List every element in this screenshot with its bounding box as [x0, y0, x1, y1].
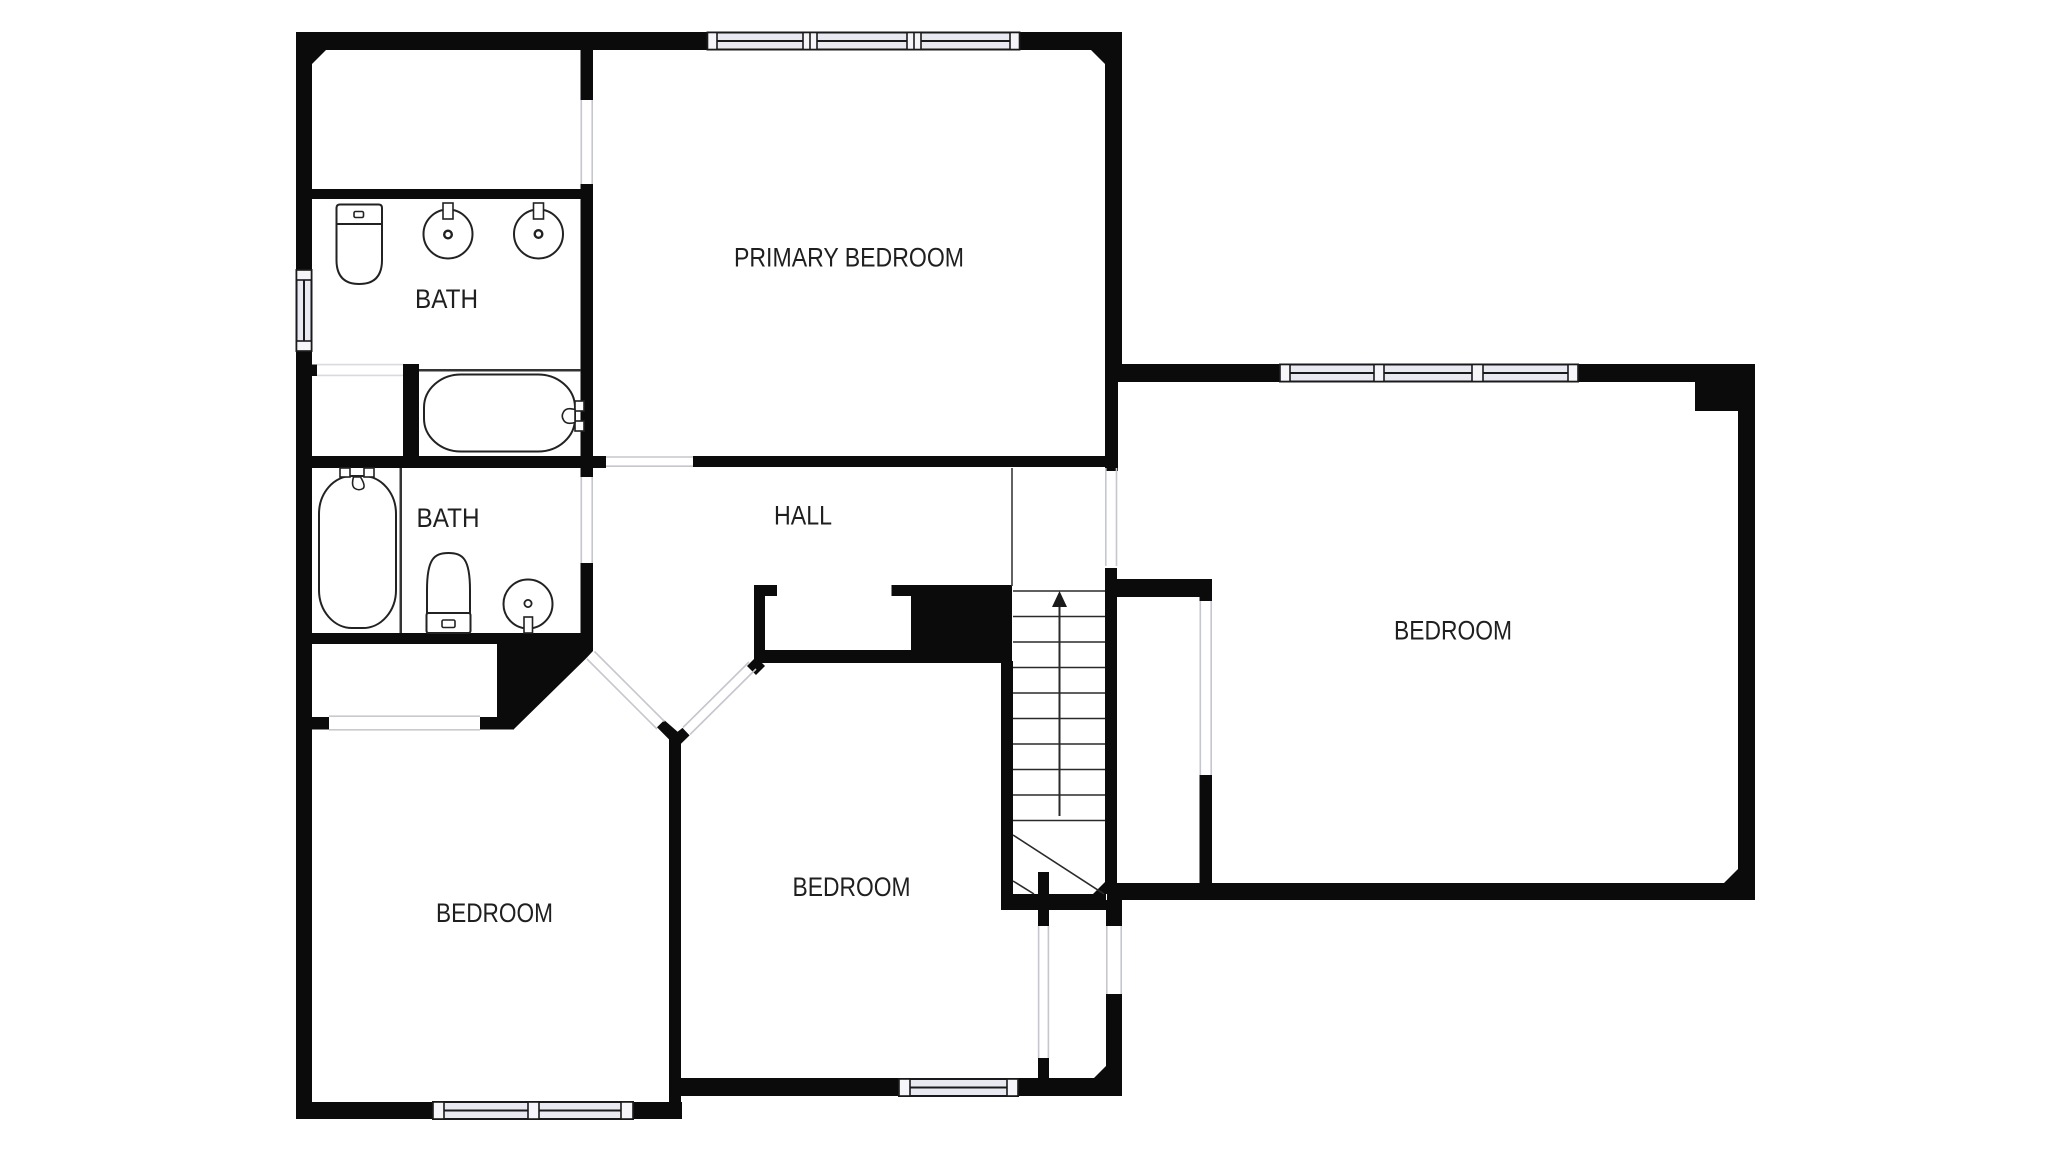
svg-text:BATH: BATH: [415, 284, 478, 314]
svg-text:BEDROOM: BEDROOM: [793, 872, 911, 902]
svg-text:BATH: BATH: [417, 503, 480, 533]
svg-text:BEDROOM: BEDROOM: [436, 898, 553, 928]
svg-text:HALL: HALL: [774, 501, 832, 531]
svg-text:PRIMARY BEDROOM: PRIMARY BEDROOM: [734, 243, 964, 273]
svg-text:BEDROOM: BEDROOM: [1394, 616, 1512, 646]
